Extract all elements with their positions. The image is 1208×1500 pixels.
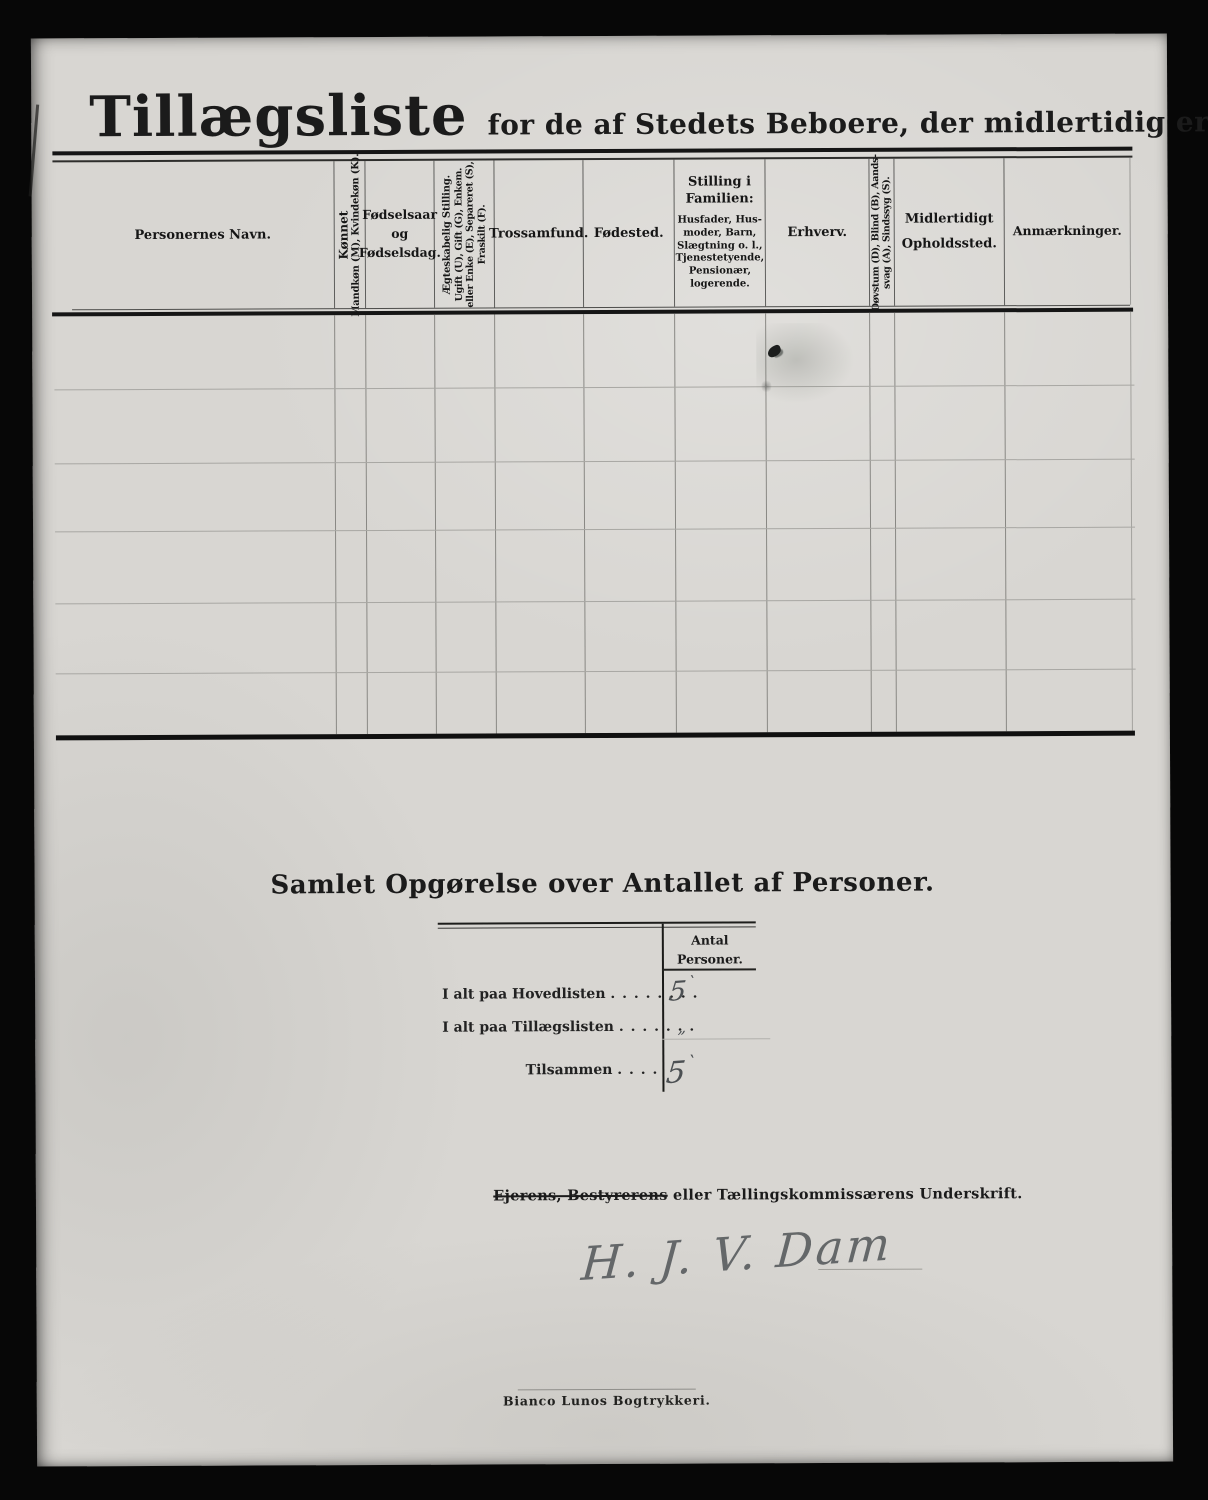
- page-title-main: Tillægsliste: [89, 83, 468, 151]
- scan-scratch: [761, 379, 771, 393]
- summary-row-divider: [662, 1038, 770, 1039]
- dot-leader: . . . .: [617, 1062, 658, 1078]
- paper-fold-mark: [29, 105, 40, 197]
- summary-rule-top: [438, 921, 756, 924]
- summary-column-header: Antal Personer.: [664, 931, 756, 969]
- summary-header-underline: [662, 968, 756, 970]
- page-title-subtitle: for de af Stedets Beboere, der midlertid…: [488, 105, 1208, 141]
- scanned-census-page-background: { "page_title": { "main": "Tillægsliste"…: [0, 0, 1208, 1500]
- handwritten-count-tilsammen: 5`: [664, 1053, 696, 1092]
- column-header-foedested: Fødested.: [583, 160, 675, 307]
- column-header-anmaerkninger: Anmærkninger.: [1004, 158, 1130, 306]
- table-header-row: Personernes Navn. Kønnet Mandkøn (M), Kv…: [71, 158, 1131, 310]
- column-header-aegteskabelig-rotated: Ægteskabelig Stilling. Ugift (U), Gift (…: [434, 160, 495, 307]
- printer-imprint: Bianco Lunos Bogtrykkeri.: [447, 1392, 767, 1408]
- scanned-paper-sheet: Tillægsliste for de af Stedets Beboere, …: [31, 34, 1173, 1467]
- footer-rule: [518, 1389, 696, 1391]
- summary-row-hovedlisten: I alt paa Hovedlisten . . . . . . . .: [442, 986, 699, 1003]
- two-line-label: Midlertidigt Opholdssted.: [902, 207, 997, 257]
- column-header-erhverv: Erhverv.: [765, 159, 870, 306]
- column-header-group-title: Stilling i Familien:: [685, 175, 753, 209]
- signature-caption-rest: eller Tællingskommissærens Underskrift.: [668, 1185, 1023, 1204]
- summary-row-tillaegslisten: I alt paa Tillægslisten . . . . . . .: [442, 1019, 695, 1036]
- signature-caption: Ejerens, Bestyrerens eller Tællingskommi…: [436, 1185, 1080, 1205]
- handwritten-signature: H. J. V. Dam: [580, 1209, 1003, 1291]
- handwritten-count-hovedlisten: 5`: [667, 973, 696, 1008]
- rotated-text: Døvstum (D), Blind (B), Aands- svag (A),…: [870, 154, 893, 311]
- column-header-stilling-i-familien: Stilling i Familien: Husfader, Hus- mode…: [674, 159, 766, 306]
- column-header-trossamfund: Trossamfund.: [494, 160, 584, 307]
- signature-caption-struck: Ejerens, Bestyrerens: [493, 1187, 667, 1205]
- column-header-foedselsaar: Fødselsaar og Fødselsdag.: [365, 161, 435, 308]
- page-title: Tillægsliste for de af Stedets Beboere, …: [89, 80, 1149, 151]
- column-header-personernes-navn: Personernes Navn.: [71, 161, 335, 309]
- summary-row-tilsammen: Tilsammen . . . .: [438, 1062, 658, 1079]
- rotated-text: Kønnet Mandkøn (M), Kvindekøn (K).: [336, 153, 363, 316]
- scan-smudge: [756, 323, 856, 405]
- summary-heading: Samlet Opgørelse over Antallet af Person…: [35, 867, 1171, 902]
- summary-table: Antal Personer. I alt paa Hovedlisten . …: [438, 921, 757, 1094]
- column-header-doevstum-rotated: Døvstum (D), Blind (B), Aands- svag (A),…: [869, 159, 895, 306]
- column-header-midlertidigt-opholdssted: Midlertidigt Opholdssted.: [894, 158, 1005, 305]
- signature-trailing-line: [818, 1269, 922, 1270]
- column-header-koennet-rotated: Kønnet Mandkøn (M), Kvindekøn (K).: [334, 161, 366, 308]
- rotated-text: Ægteskabelig Stilling. Ugift (U), Gift (…: [441, 161, 488, 307]
- summary-rule-top-thin: [438, 926, 756, 928]
